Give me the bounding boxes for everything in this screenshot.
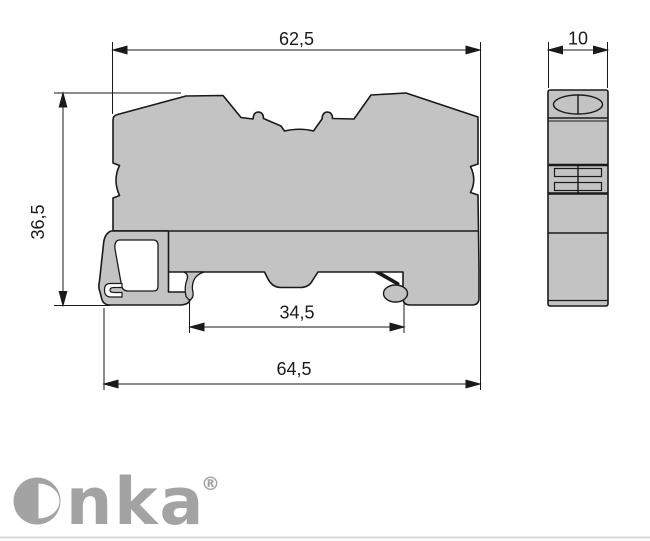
- technical-drawing-page: 62,5 36,5 34,5 64,5: [0, 0, 650, 541]
- end-view-body: [548, 90, 608, 306]
- arrowhead-left: [190, 323, 204, 331]
- arrowhead-down: [59, 292, 67, 306]
- arrowhead-left: [549, 46, 563, 54]
- rail-recess-left-hook: [184, 272, 204, 301]
- dim-label-rail-recess: 34,5: [279, 303, 314, 323]
- rail-latch-bump: [384, 285, 408, 302]
- dim-label-top-width: 62,5: [279, 29, 314, 49]
- arrowhead-left: [113, 46, 127, 54]
- dim-label-thickness: 10: [568, 29, 588, 49]
- arrowhead-left: [104, 380, 118, 388]
- arrowhead-up: [59, 93, 67, 107]
- rail-latch-spring-line: [375, 273, 399, 287]
- onka-logo: nka ®: [14, 465, 221, 540]
- technical-drawing-canvas: 62,5 36,5 34,5 64,5: [0, 0, 650, 541]
- dim-label-height: 36,5: [28, 204, 48, 239]
- arrowhead-right: [466, 380, 480, 388]
- arrowhead-right: [594, 46, 608, 54]
- dimension-rail-recess-width: 34,5: [190, 299, 405, 333]
- onka-logo-wordmark: nka: [66, 465, 205, 540]
- main-view: [99, 93, 479, 305]
- arrowhead-right: [466, 46, 480, 54]
- arrowhead-right: [390, 323, 404, 331]
- dim-label-overall-width: 64,5: [276, 359, 311, 379]
- end-view: [548, 90, 608, 306]
- registered-trademark-icon: ®: [201, 473, 220, 495]
- dimension-thickness: 10: [549, 29, 608, 89]
